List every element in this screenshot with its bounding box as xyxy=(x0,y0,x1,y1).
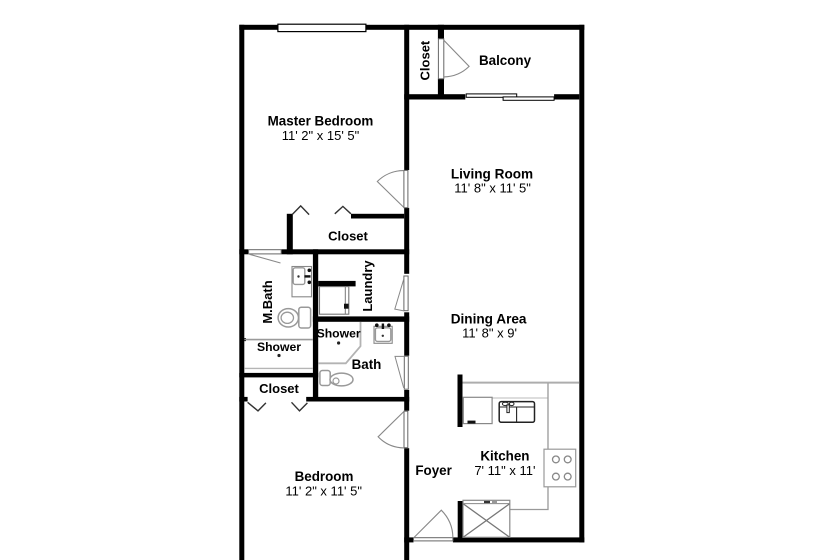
svg-text:Foyer: Foyer xyxy=(415,463,452,478)
svg-text:11' 8" x 11' 5": 11' 8" x 11' 5" xyxy=(454,181,531,196)
svg-text:Bedroom: Bedroom xyxy=(295,469,354,484)
svg-text:Closet: Closet xyxy=(328,229,368,244)
svg-text:Balcony: Balcony xyxy=(479,53,532,68)
svg-text:Shower: Shower xyxy=(257,340,301,354)
svg-text:Dining Area: Dining Area xyxy=(451,312,527,327)
svg-text:Kitchen: Kitchen xyxy=(480,448,529,463)
svg-text:Master Bedroom: Master Bedroom xyxy=(268,114,374,129)
svg-text:Bath: Bath xyxy=(352,357,382,372)
svg-text:11' 8" x 9': 11' 8" x 9' xyxy=(462,326,517,341)
svg-text:11' 2" x 11' 5": 11' 2" x 11' 5" xyxy=(285,483,362,498)
svg-text:Living Room: Living Room xyxy=(451,167,533,182)
svg-text:Closet: Closet xyxy=(418,40,433,80)
svg-text:Laundry: Laundry xyxy=(360,260,375,312)
svg-text:7' 11" x 11': 7' 11" x 11' xyxy=(474,463,535,478)
svg-text:Shower: Shower xyxy=(317,327,361,341)
svg-text:M.Bath: M.Bath xyxy=(260,280,275,323)
svg-text:11' 2" x 15' 5": 11' 2" x 15' 5" xyxy=(282,128,360,143)
svg-text:Closet: Closet xyxy=(259,381,299,396)
